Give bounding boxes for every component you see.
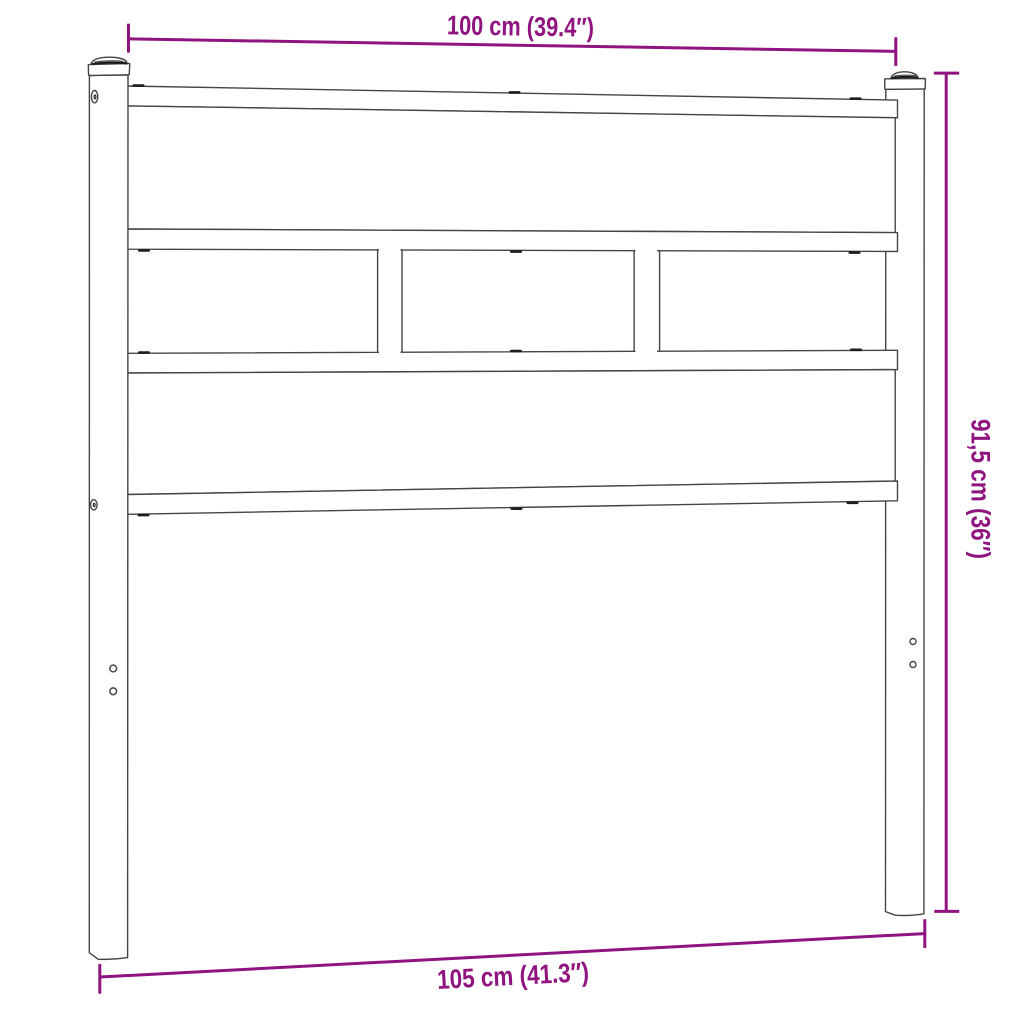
svg-text:91,5 cm (36″): 91,5 cm (36″) [966, 419, 996, 559]
svg-text:100 cm (39.4″): 100 cm (39.4″) [447, 10, 594, 42]
